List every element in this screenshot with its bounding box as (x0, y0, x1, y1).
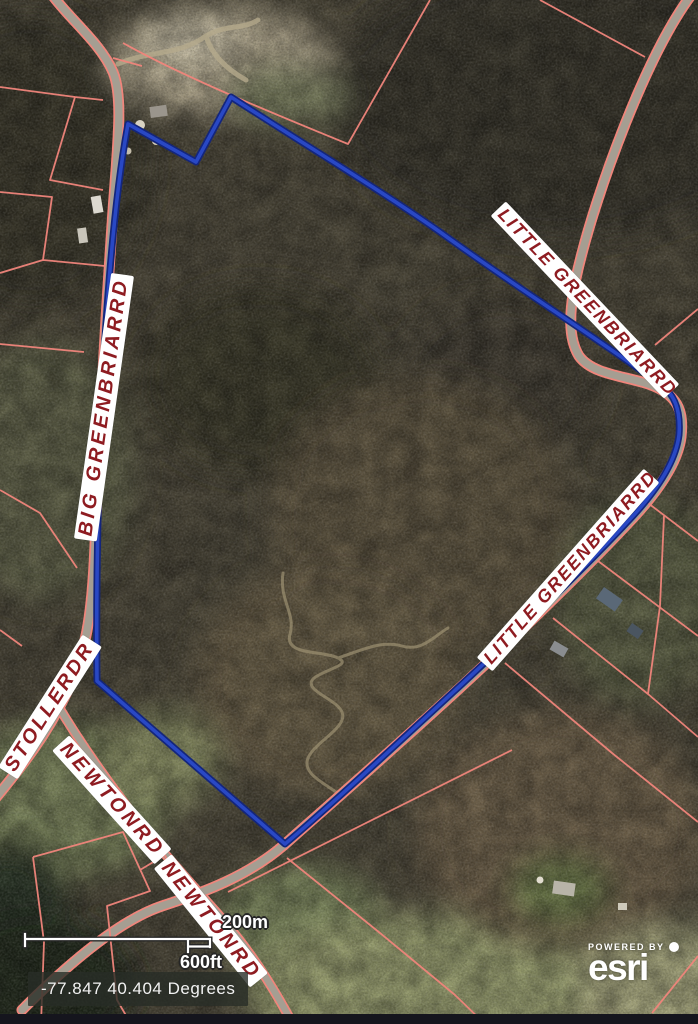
scale-metric-label: 200m (222, 912, 268, 933)
map-canvas[interactable] (0, 0, 698, 1024)
scale-imperial-label: 600ft (180, 952, 222, 973)
esri-globe-icon (669, 942, 679, 952)
coordinate-readout: -77.847 40.404 Degrees (28, 972, 248, 1006)
terrain-speckle-light (0, 0, 698, 1024)
scale-bar-outline (25, 934, 210, 952)
esri-logo: esri (588, 954, 679, 983)
scale-bar: 200m 600ft (20, 908, 260, 974)
map-viewport[interactable]: BIG GREENBRIARRD LITTLE GREENBRIARRD LIT… (0, 0, 698, 1024)
bottom-edge-bar (0, 1014, 698, 1024)
esri-attribution: POWERED BY esri (588, 942, 679, 983)
